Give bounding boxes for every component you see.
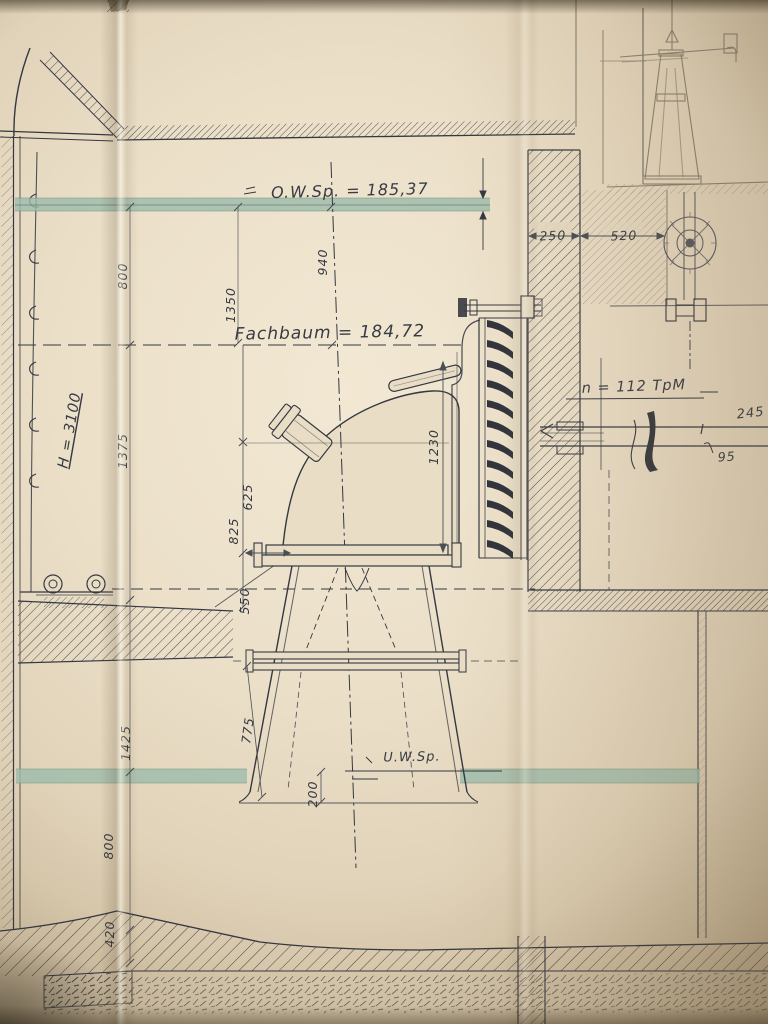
dim-1350: 1350 (223, 287, 238, 323)
water-level-symbol-headwater (244, 187, 256, 194)
dim-1230: 1230 (426, 429, 441, 465)
bottom-cut-wall (518, 936, 545, 1024)
water-level-symbol-tailwater (366, 757, 372, 763)
left-footing (18, 601, 233, 663)
dim-420: 420 (102, 921, 117, 948)
dim-head-H3100: H = 3100 (55, 391, 84, 470)
regulating-lever (388, 364, 462, 393)
dim-800-lower: 800 (101, 833, 116, 860)
dim-1425: 1425 (118, 725, 133, 761)
dimension-lines (126, 203, 664, 967)
governor-pedestal (576, 0, 737, 184)
runner-cone-tip (345, 568, 369, 591)
dim-800-upper: 800 (115, 263, 130, 290)
dim-95: 95 (717, 448, 736, 464)
datum-lines (18, 158, 609, 661)
rpm-label: n = 112 TpM (581, 377, 686, 397)
dim-940: 940 (315, 249, 330, 276)
dim-250: 250 (539, 228, 566, 244)
pier-nose (14, 0, 129, 138)
dim-775: 775 (238, 716, 257, 745)
tailwater-label: U.W.Sp. (383, 750, 440, 766)
turbine-section-drawing: O.W.Sp. = 185,37 Fachbaum = 184,72 n = 1… (0, 0, 768, 1024)
turbine-pit-wall (528, 150, 580, 592)
dim-200: 200 (305, 781, 320, 808)
drawing-photo: O.W.Sp. = 185,37 Fachbaum = 184,72 n = 1… (0, 0, 768, 1024)
headwater-band (15, 198, 490, 211)
dim-245: 245 (736, 405, 765, 423)
wall-anchor-hooks (30, 194, 39, 487)
guide-vanes (487, 320, 513, 559)
dim-625: 625 (240, 484, 255, 511)
pipe-section-right (87, 575, 105, 593)
tailrace-deck (528, 590, 768, 611)
rubble-ground (44, 973, 768, 1014)
draft-tube (239, 543, 478, 803)
dim-825: 825 (226, 518, 241, 545)
headwater-ceiling (0, 120, 575, 141)
dim-550: 550 (237, 588, 252, 615)
pipe-section-left (44, 575, 62, 593)
dim-1375: 1375 (115, 433, 130, 469)
tie-rod-bolt (458, 298, 467, 317)
fachbaum-label: Fachbaum = 184,72 (235, 321, 426, 344)
regulating-gear (664, 192, 716, 372)
cone-flange (252, 652, 460, 659)
dim-520: 520 (610, 228, 637, 244)
